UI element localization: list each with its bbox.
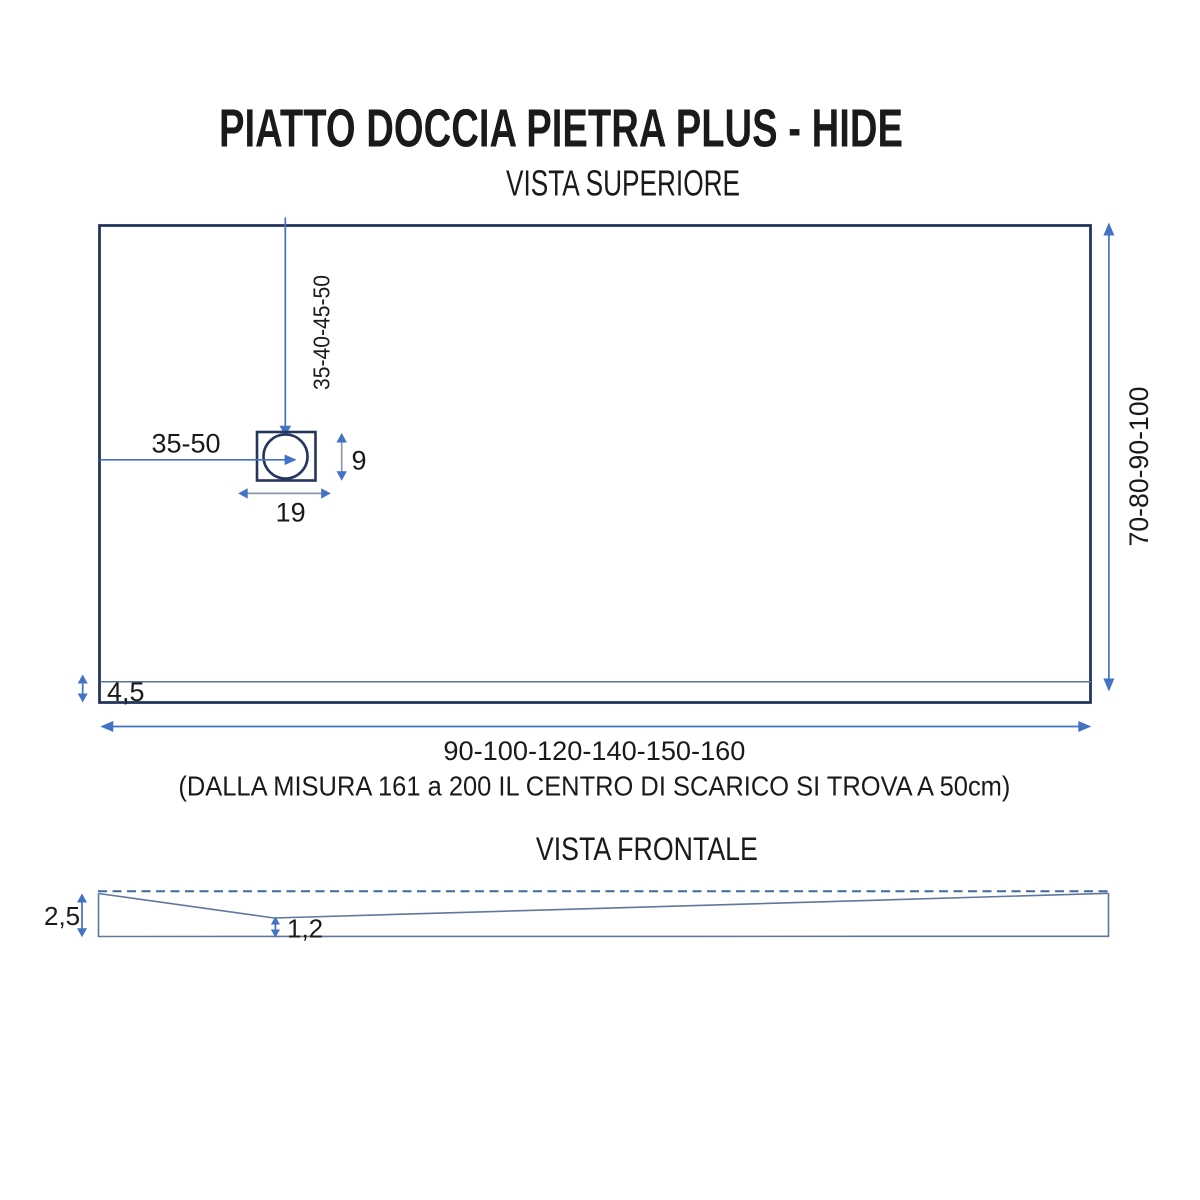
svg-text:VISTA SUPERIORE: VISTA SUPERIORE bbox=[506, 163, 740, 204]
svg-text:90-100-120-140-150-160: 90-100-120-140-150-160 bbox=[443, 736, 745, 766]
svg-text:1,2: 1,2 bbox=[287, 914, 323, 944]
svg-text:(DALLA MISURA 161 a 200 IL CEN: (DALLA MISURA 161 a 200 IL CENTRO DI SCA… bbox=[178, 770, 1010, 801]
svg-text:VISTA FRONTALE: VISTA FRONTALE bbox=[536, 831, 758, 867]
svg-text:70-80-90-100: 70-80-90-100 bbox=[1124, 387, 1154, 547]
svg-text:9: 9 bbox=[352, 445, 367, 475]
svg-text:35-40-45-50: 35-40-45-50 bbox=[309, 275, 335, 390]
svg-text:2,5: 2,5 bbox=[44, 901, 80, 931]
svg-text:4,5: 4,5 bbox=[107, 677, 145, 707]
svg-text:PIATTO DOCCIA PIETRA PLUS - HI: PIATTO DOCCIA PIETRA PLUS - HIDE bbox=[219, 99, 903, 159]
svg-text:35-50: 35-50 bbox=[151, 429, 220, 459]
svg-text:19: 19 bbox=[276, 498, 306, 528]
